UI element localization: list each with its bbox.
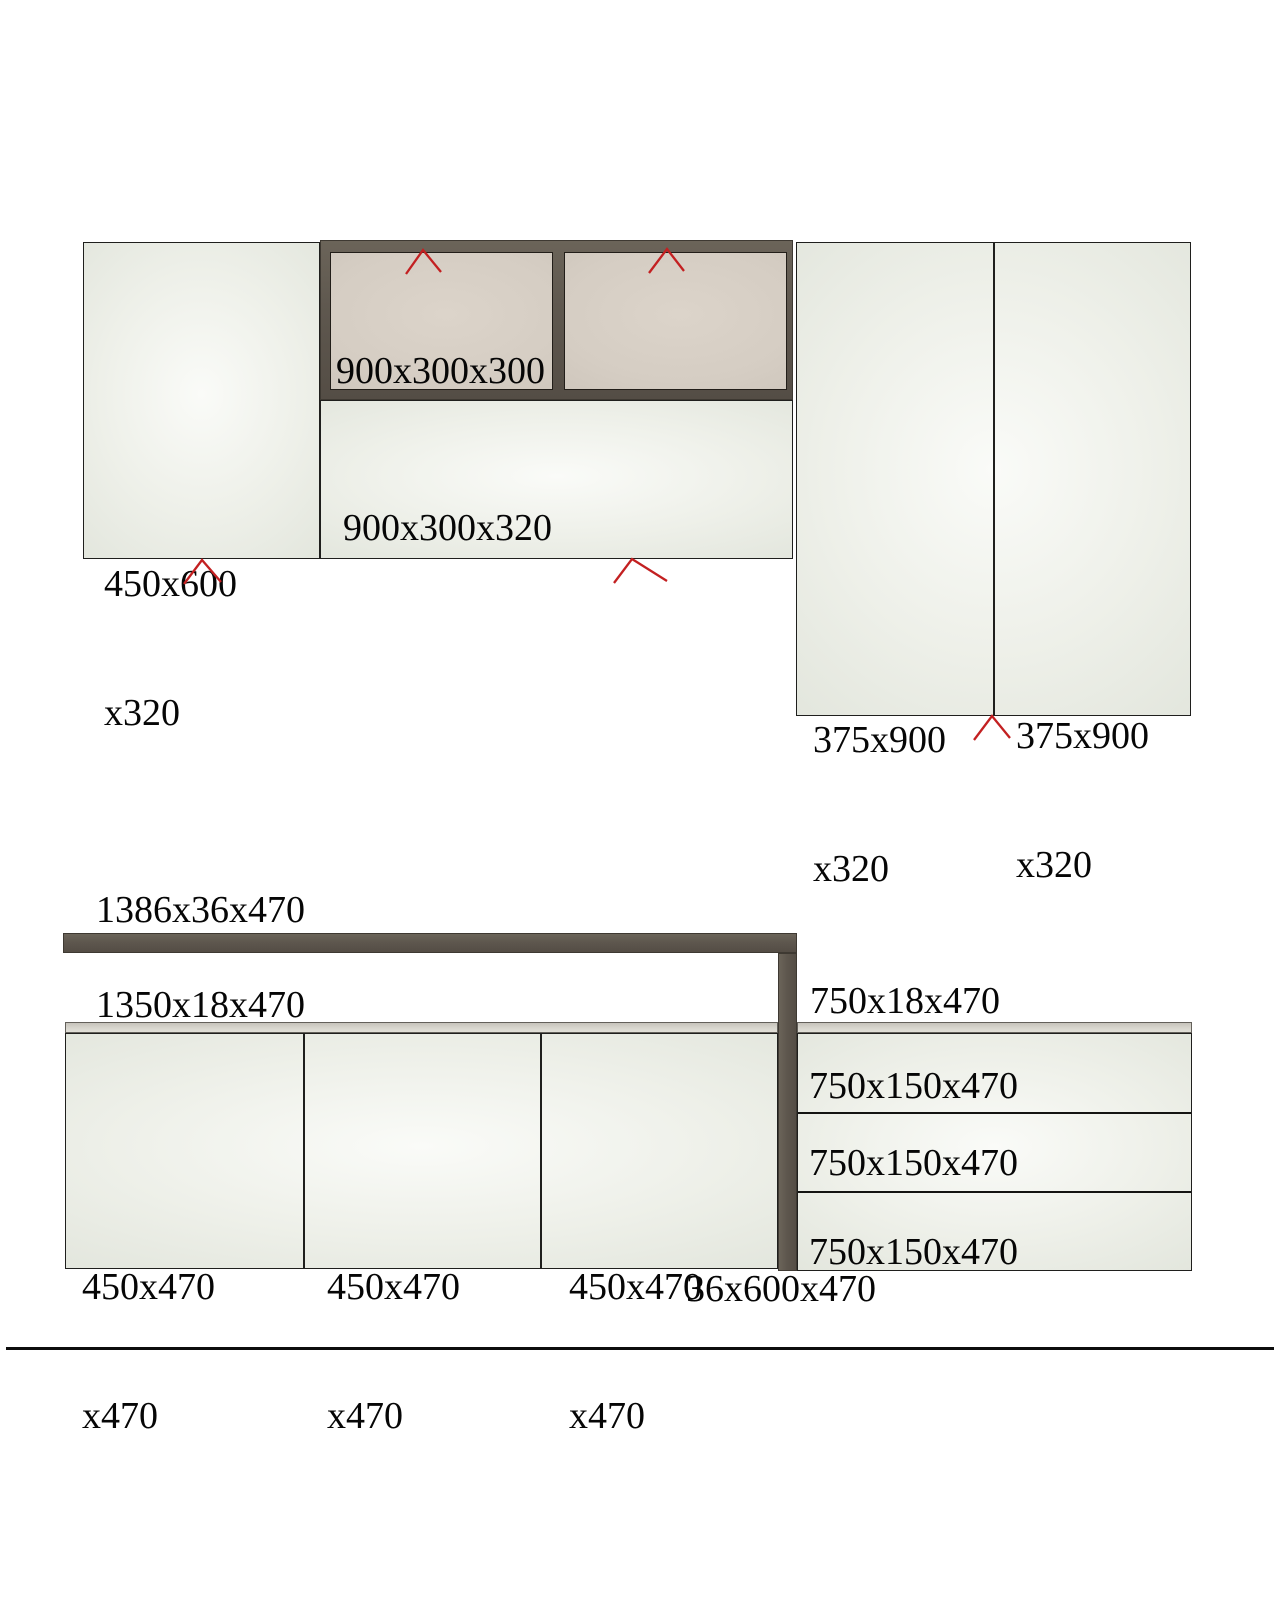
side-divider-bar	[778, 953, 797, 1271]
dimension-line: 450x470	[569, 1266, 702, 1309]
dimension-line: 450x600	[104, 563, 237, 606]
dimension-label: 375x900 x320	[813, 633, 946, 977]
dimension-label: 900x300x320	[343, 507, 552, 550]
lower-right-drawers: 750x150x470 750x150x470 750x150x470	[797, 1033, 1192, 1271]
dimension-line: 450x470	[327, 1266, 460, 1309]
dimension-label: 750x18x470	[810, 980, 1000, 1023]
tall-doors-pair: 375x900 x320 375x900 x320	[796, 242, 1191, 716]
dimension-label: 450x470 x470	[327, 1180, 460, 1524]
separator-rule	[6, 1347, 1274, 1350]
dimension-label: 375x900 x320	[1016, 629, 1149, 973]
dimension-line: x470	[327, 1395, 460, 1438]
drawer-front: 750x150x470	[798, 1034, 1191, 1112]
drawer-front: 750x150x470	[798, 1191, 1191, 1272]
dimension-label: 1386x36x470	[96, 889, 305, 932]
wall-box-door-left: 900x300x300	[330, 252, 553, 390]
dimension-label: 450x600 x320	[104, 477, 237, 821]
dimension-line: x470	[569, 1395, 702, 1438]
red-chevron-marker-icon	[614, 559, 667, 583]
dimension-label: 900x300x300	[336, 350, 545, 393]
dimension-label: 750x150x470	[809, 1065, 1018, 1108]
wall-box-frame: 900x300x300	[320, 240, 793, 400]
upper-side-panel: 450x600 x320	[83, 242, 320, 559]
upper-base-front: 900x300x320	[320, 400, 793, 559]
door-divider-line	[540, 1034, 542, 1268]
wall-box-door-right	[564, 252, 787, 390]
dimension-label: 36x600x470	[686, 1268, 876, 1311]
dimension-line: 450x470	[82, 1266, 215, 1309]
dimension-label: 450x470 x470	[82, 1180, 215, 1524]
dimension-label: 1350x18x470	[96, 984, 305, 1027]
dimension-label: 450x470 x470	[569, 1180, 702, 1524]
dimension-label: 750x150x470	[809, 1142, 1018, 1185]
countertop-rail-bar	[63, 933, 797, 953]
left-shelf-strip	[65, 1022, 778, 1033]
drawer-front: 750x150x470	[798, 1112, 1191, 1191]
right-shelf-strip	[797, 1022, 1192, 1033]
lower-left-doors: 450x470 x470 450x470 x470 450x470 x470	[65, 1033, 778, 1269]
cabinet-cutting-diagram: 450x600 x320 900x300x300 900x300x320 375…	[0, 0, 1280, 1600]
dimension-line: 375x900	[1016, 715, 1149, 758]
dimension-line: x320	[104, 692, 237, 735]
dimension-line: x320	[1016, 844, 1149, 887]
door-divider-line	[993, 243, 995, 715]
red-chevron-marker-icon	[974, 716, 1010, 740]
dimension-line: x320	[813, 848, 946, 891]
dimension-line: x470	[82, 1395, 215, 1438]
dimension-line: 375x900	[813, 719, 946, 762]
door-divider-line	[303, 1034, 305, 1268]
